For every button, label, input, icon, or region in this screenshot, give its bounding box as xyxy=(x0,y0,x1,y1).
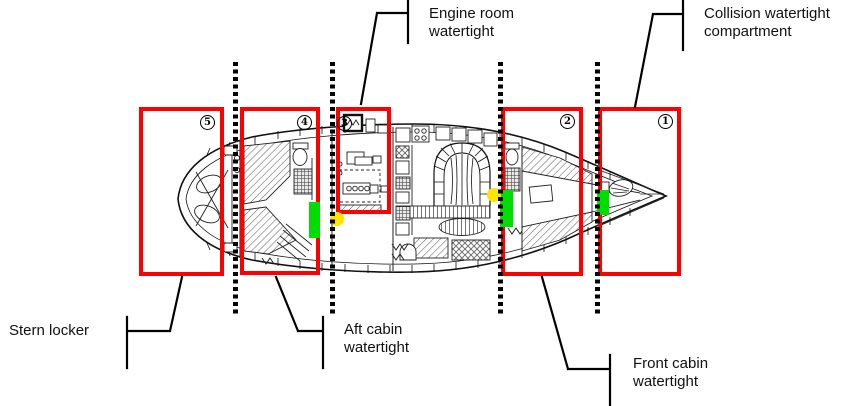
watertight-door-marker-aft xyxy=(309,202,320,238)
compartment-number-4: 4 xyxy=(297,115,312,130)
watertight-compartment-diagram: 5 4 3 2 1 Engine room watertight Collisi… xyxy=(0,0,854,406)
compartment-box-stern-locker: 5 xyxy=(139,107,224,276)
label-aft-cabin-watertight: Aft cabin watertight xyxy=(344,321,409,357)
compartment-box-collision: 1 xyxy=(598,107,681,276)
bulkhead-dotted-line-3 xyxy=(498,62,503,316)
yacht-deck-plan xyxy=(0,0,854,406)
bulkhead-dotted-line-2 xyxy=(330,62,335,316)
bulkhead-dotted-line-4 xyxy=(595,62,600,316)
label-collision-watertight-compartment: Collision watertight compartment xyxy=(704,5,830,41)
compartment-box-engine-room: 3 xyxy=(336,107,391,214)
label-engine-room-watertight: Engine room watertight xyxy=(429,5,514,41)
label-front-cabin-watertight: Front cabin watertight xyxy=(633,355,708,391)
compartment-number-5: 5 xyxy=(200,115,215,130)
label-stern-locker: Stern locker xyxy=(9,322,89,340)
compartment-box-aft-cabin: 4 xyxy=(240,107,320,275)
bulkhead-dotted-line-1 xyxy=(233,62,238,316)
compartment-box-front-cabin: 2 xyxy=(501,107,583,276)
compartment-number-2: 2 xyxy=(560,114,575,129)
compartment-number-1: 1 xyxy=(658,114,673,129)
compartment-number-3: 3 xyxy=(337,116,352,131)
companionway-stairs xyxy=(434,143,490,206)
